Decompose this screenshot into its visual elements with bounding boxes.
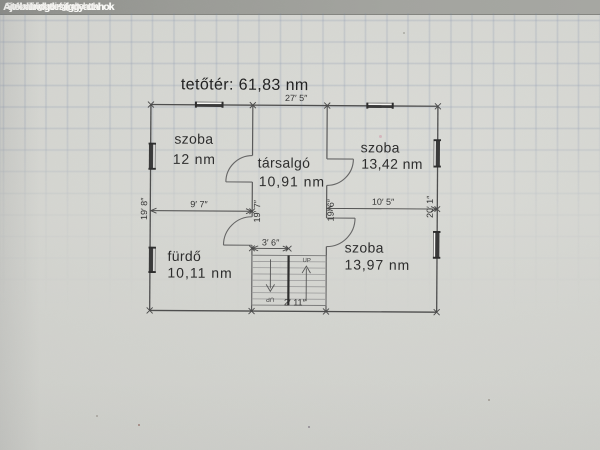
svg-text:13,97 nm: 13,97 nm	[345, 257, 411, 273]
svg-text:fürdő: fürdő	[167, 248, 201, 264]
svg-text:10,91 nm: 10,91 nm	[259, 173, 325, 189]
svg-text:19′ 8″: 19′ 8″	[139, 197, 149, 220]
svg-text:tetőtér: 61,83 nm: tetőtér: 61,83 nm	[181, 76, 309, 94]
svg-text:19′ 7″: 19′ 7″	[252, 199, 262, 222]
svg-text:10′ 5″: 10′ 5″	[372, 197, 395, 207]
svg-text:3′ 6″: 3′ 6″	[262, 237, 280, 247]
svg-text:szoba: szoba	[361, 139, 400, 155]
svg-text:szoba: szoba	[345, 239, 384, 255]
svg-text:13,42 nm: 13,42 nm	[361, 156, 423, 172]
svg-text:10,11 nm: 10,11 nm	[167, 265, 232, 281]
svg-text:19′ 6″: 19′ 6″	[326, 198, 336, 221]
svg-text:12 nm: 12 nm	[173, 151, 216, 167]
svg-text:UP: UP	[266, 296, 274, 302]
svg-text:2′ 11″: 2′ 11″	[284, 297, 307, 307]
svg-text:20′ 1″: 20′ 1″	[425, 195, 435, 218]
svg-text:UP: UP	[302, 258, 310, 264]
svg-text:szoba: szoba	[174, 131, 213, 147]
svg-text:9′ 7″: 9′ 7″	[190, 199, 208, 209]
svg-text:27′ 5″: 27′ 5″	[285, 93, 308, 103]
svg-text:társalgó: társalgó	[258, 154, 311, 170]
